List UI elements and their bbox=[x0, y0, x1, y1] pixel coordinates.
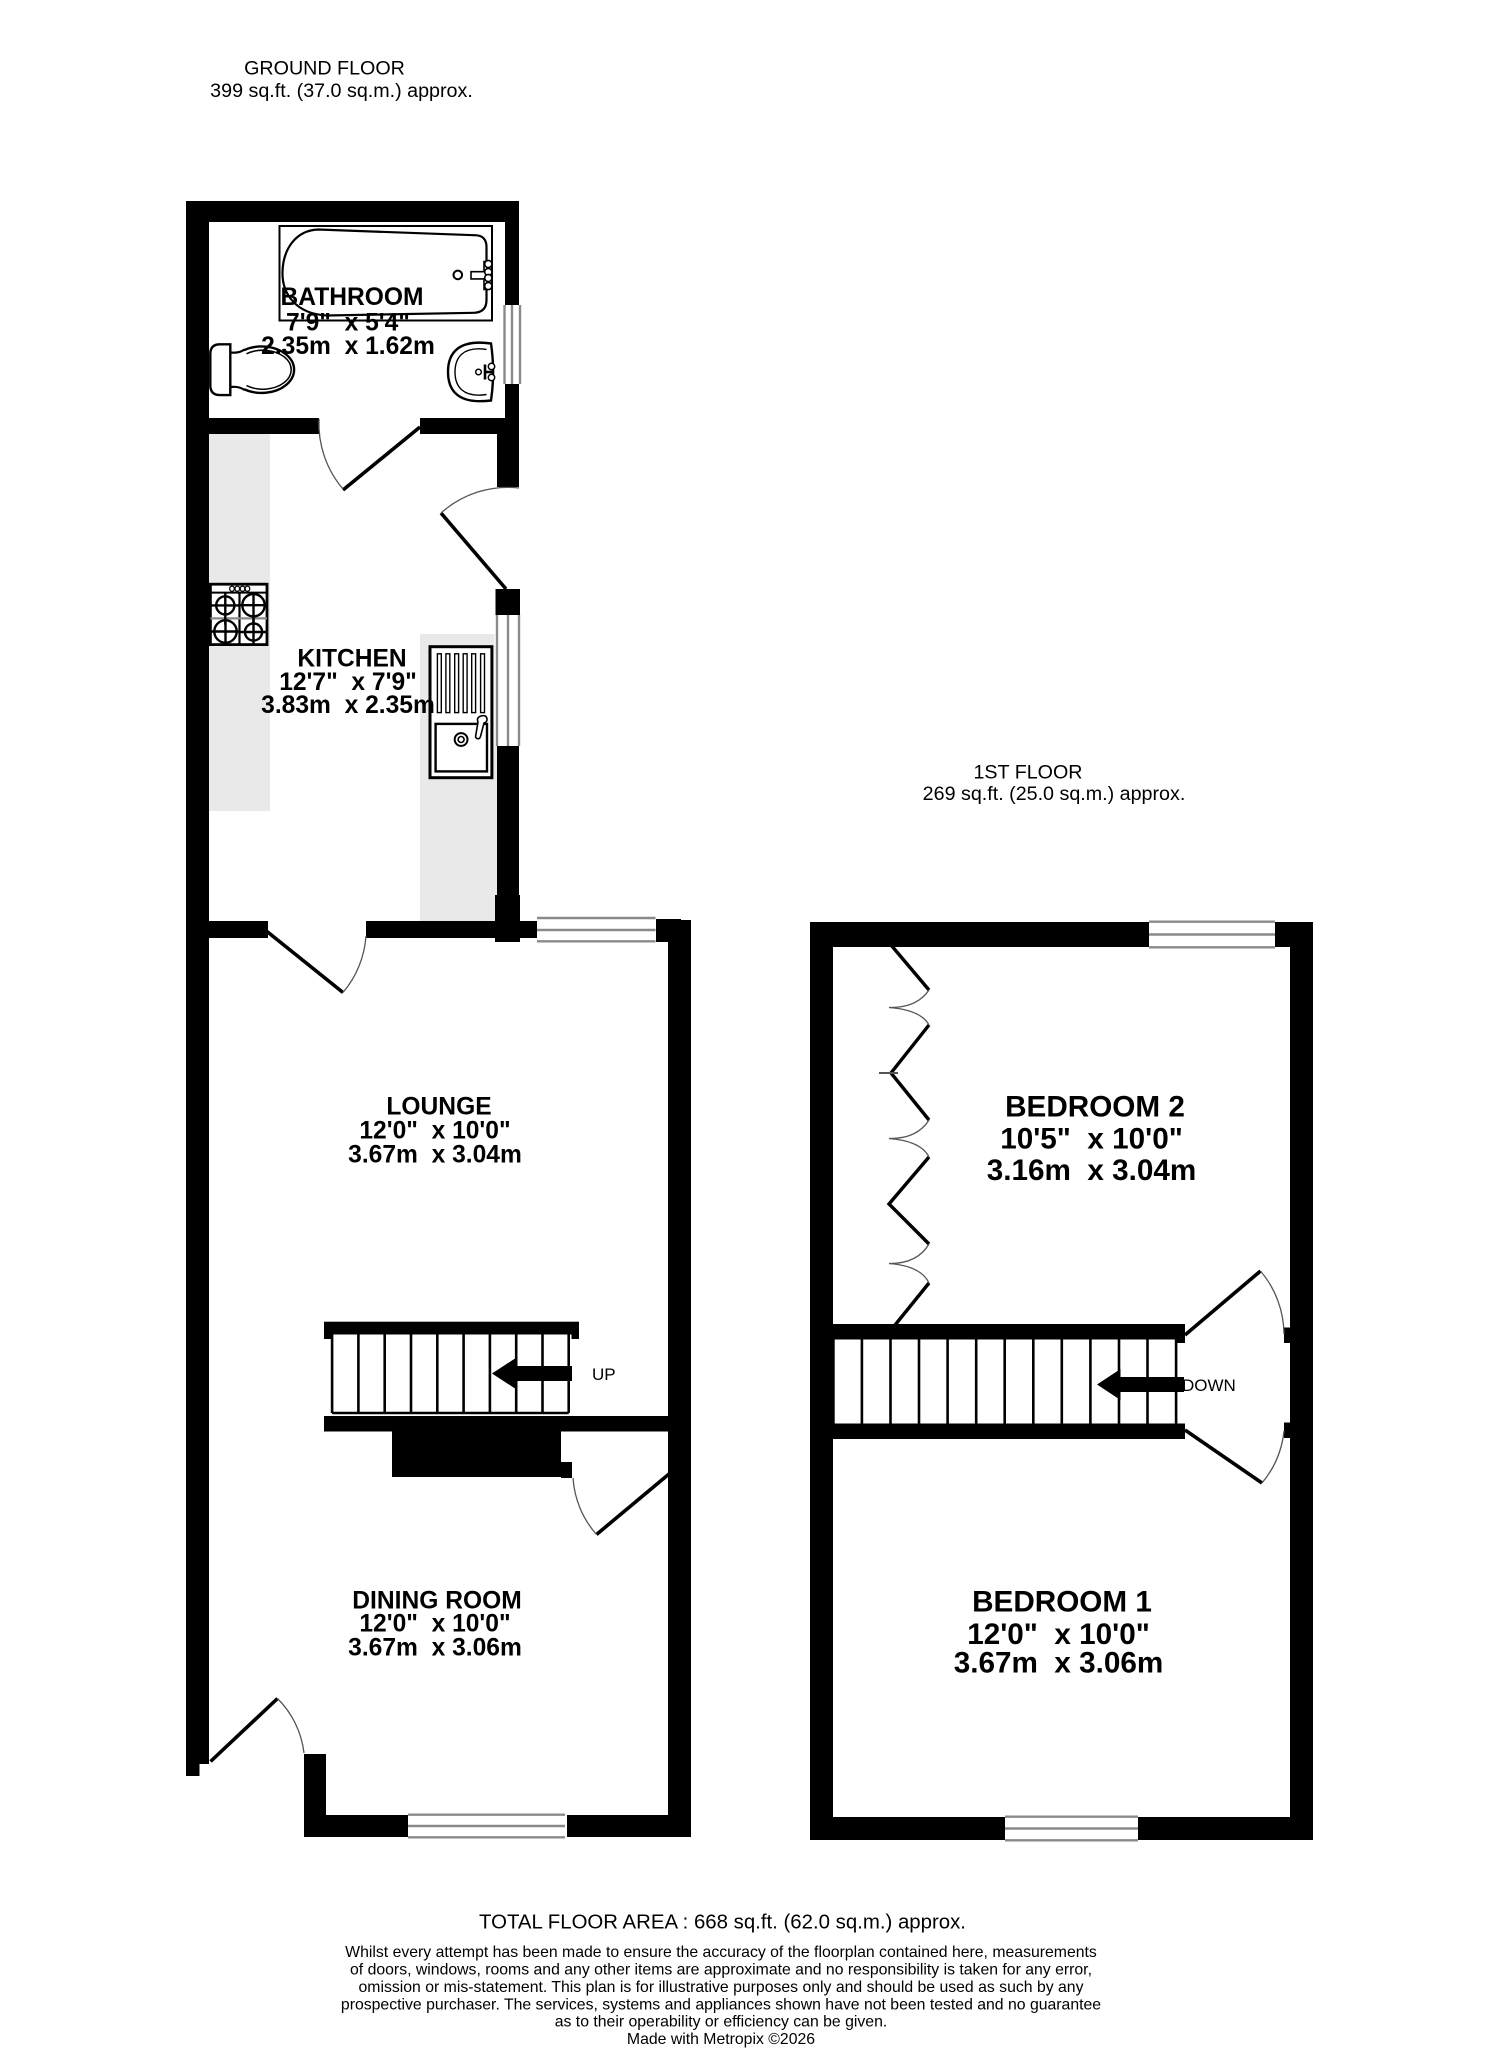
svg-text:DOWN: DOWN bbox=[1182, 1376, 1236, 1395]
svg-text:10'5" x 10'0": 10'5" x 10'0" bbox=[1000, 1123, 1183, 1156]
svg-text:TOTAL FLOOR AREA : 668 sq.ft.: TOTAL FLOOR AREA : 668 sq.ft. (62.0 sq.m… bbox=[479, 1912, 966, 1934]
svg-text:BATHROOM: BATHROOM bbox=[281, 284, 424, 311]
svg-text:3.67m x 3.06m: 3.67m x 3.06m bbox=[954, 1647, 1164, 1680]
svg-text:269 sq.ft. (25.0 sq.m.) approx: 269 sq.ft. (25.0 sq.m.) approx. bbox=[923, 783, 1186, 805]
svg-text:prospective purchaser. The ser: prospective purchaser. The services, sys… bbox=[341, 1997, 1101, 2014]
svg-text:UP: UP bbox=[592, 1365, 616, 1384]
svg-text:399 sq.ft. (37.0 sq.m.) approx: 399 sq.ft. (37.0 sq.m.) approx. bbox=[210, 80, 473, 102]
svg-text:LOUNGE: LOUNGE bbox=[386, 1094, 491, 1121]
svg-text:omission or mis-statement. Thi: omission or mis-statement. This plan is … bbox=[359, 1979, 1084, 1996]
svg-text:Whilst every attempt has been: Whilst every attempt has been made to en… bbox=[345, 1944, 1097, 1961]
svg-text:3.16m x 3.04m: 3.16m x 3.04m bbox=[987, 1154, 1197, 1187]
svg-text:12'0" x 10'0": 12'0" x 10'0" bbox=[359, 1118, 510, 1145]
svg-text:2.35m x 1.62m: 2.35m x 1.62m bbox=[261, 333, 435, 360]
svg-text:GROUND FLOOR: GROUND FLOOR bbox=[244, 58, 405, 80]
svg-text:3.67m x 3.06m: 3.67m x 3.06m bbox=[348, 1635, 522, 1662]
svg-text:of doors, windows, rooms and a: of doors, windows, rooms and any other i… bbox=[350, 1962, 1092, 1979]
svg-text:3.83m x 2.35m: 3.83m x 2.35m bbox=[261, 692, 435, 719]
svg-text:Made with Metropix ©2026: Made with Metropix ©2026 bbox=[627, 2031, 815, 2048]
svg-text:1ST FLOOR: 1ST FLOOR bbox=[973, 762, 1082, 784]
svg-text:BEDROOM 2: BEDROOM 2 bbox=[1005, 1091, 1185, 1124]
svg-text:as to their operability or eff: as to their operability or efficiency ca… bbox=[555, 2014, 888, 2031]
svg-text:12'0" x 10'0": 12'0" x 10'0" bbox=[359, 1611, 510, 1638]
svg-text:BEDROOM 1: BEDROOM 1 bbox=[972, 1586, 1152, 1619]
svg-text:3.67m x 3.04m: 3.67m x 3.04m bbox=[348, 1142, 522, 1169]
